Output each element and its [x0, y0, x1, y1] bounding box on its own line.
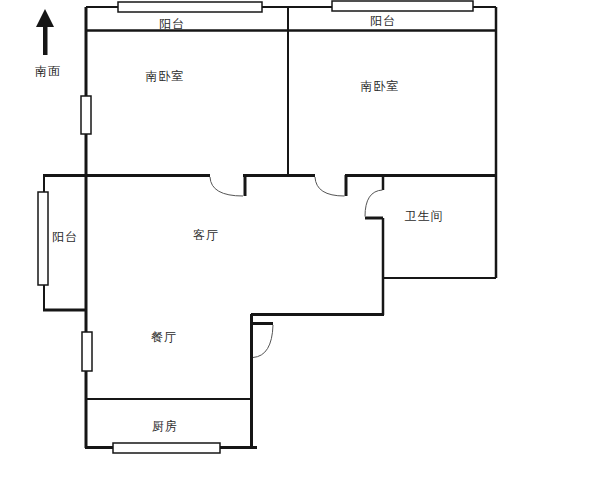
door-arc-bathroom [365, 190, 383, 217]
window-balcony-left-wall [38, 192, 48, 285]
room-label-balcony-top-right: 阳台 [370, 13, 396, 30]
room-label-bathroom: 卫生间 [405, 208, 444, 225]
arrow-shaft [43, 26, 48, 55]
room-label-kitchen: 厨房 [152, 418, 178, 435]
arrow-head [36, 9, 54, 27]
window-bedroom-left-wall [81, 96, 91, 134]
door-arc-bedroom-left [210, 177, 243, 196]
window-balcony-top-left [118, 2, 262, 12]
windows [38, 1, 473, 453]
room-label-balcony-top-left: 阳台 [159, 16, 185, 33]
room-label-balcony-left: 阳台 [52, 229, 78, 246]
floor-plan: 南面 阳台 阳台 南卧室 南卧室 阳台 客厅 卫生间 餐厅 厨房 [0, 0, 600, 492]
room-label-dining: 餐厅 [151, 329, 177, 346]
door-arc-bedroom-right [315, 177, 345, 196]
floor-plan-drawing [0, 0, 600, 492]
walls [43, 7, 496, 448]
room-label-living: 客厅 [193, 227, 219, 244]
room-label-bedroom-right: 南卧室 [361, 78, 400, 95]
window-kitchen-bottom [113, 443, 220, 453]
room-label-bedroom-left: 南卧室 [146, 68, 185, 85]
compass-label: 南面 [35, 63, 61, 80]
north-arrow-icon [36, 9, 54, 55]
doors [210, 175, 383, 358]
window-balcony-top-right [332, 1, 473, 11]
window-dining-left-wall [82, 332, 92, 371]
door-arc-entry [253, 325, 273, 358]
